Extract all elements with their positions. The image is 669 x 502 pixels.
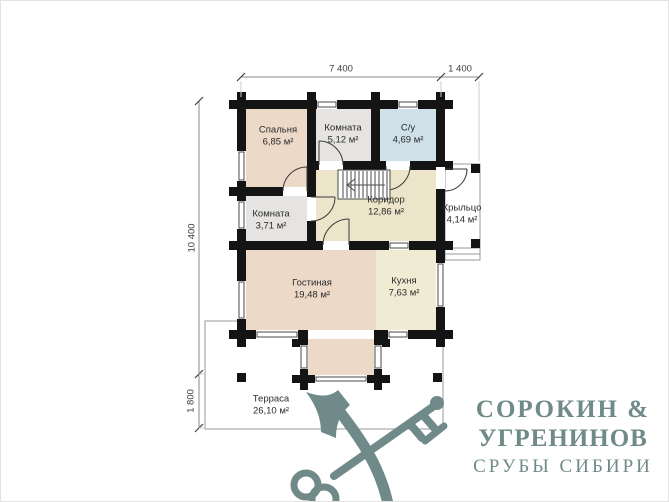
company-name: СОРОКИН & УГРЕНИНОВ СРУБЫ СИБИРИ [456, 396, 669, 480]
room-label-room-371: Комната3,71 м² [252, 209, 289, 234]
dimension-width-porch: 1 400 [448, 64, 472, 75]
axe-key-logo-icon [284, 386, 470, 502]
dimension-width-main: 7 400 [329, 64, 353, 75]
room-label-bathroom: С/у4,69 м² [393, 123, 424, 148]
company-name-line2: УГРЕНИНОВ [456, 424, 669, 454]
room-label-porch: Крыльцо4,14 м² [443, 203, 482, 228]
room-label-corridor: Коридор12,86 м² [367, 195, 405, 220]
room-label-living-room: Гостиная19,48 м² [292, 278, 332, 303]
room-label-bedroom: Спальня6,85 м² [259, 125, 297, 150]
floor-plan-page: 7 400 1 400 10 400 1 800 Спальня6,85 м² … [0, 0, 669, 502]
company-logo: СОРОКИН & УГРЕНИНОВ СРУБЫ СИБИРИ [284, 384, 669, 502]
dimension-height-main: 10 400 [187, 223, 198, 252]
dimension-height-terrace: 1 800 [186, 389, 197, 413]
room-label-kitchen: Кухня7,63 м² [389, 276, 420, 301]
company-name-line1: СОРОКИН & [456, 396, 669, 424]
room-label-room-512: Комната5,12 м² [324, 123, 361, 148]
company-tagline: СРУБЫ СИБИРИ [456, 454, 669, 480]
